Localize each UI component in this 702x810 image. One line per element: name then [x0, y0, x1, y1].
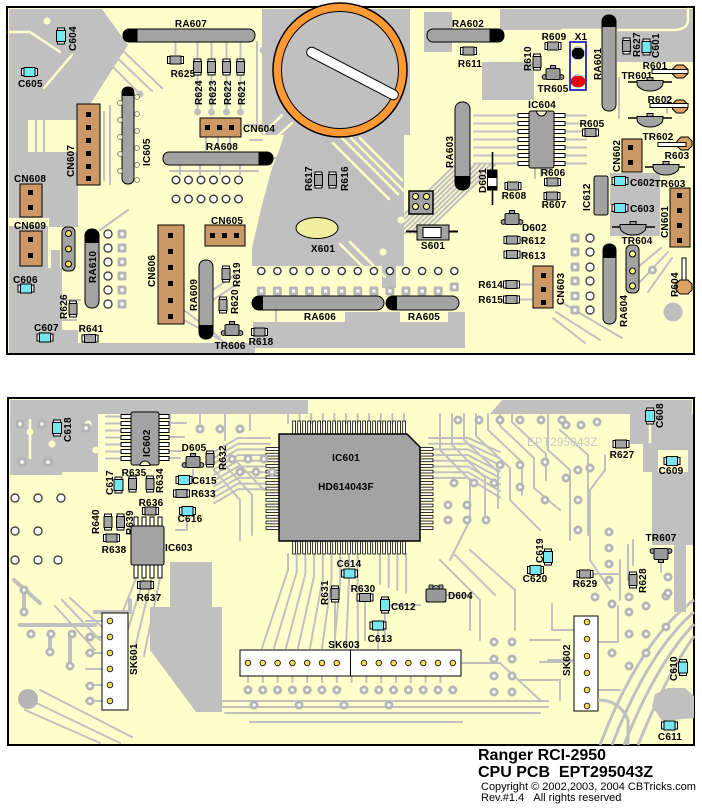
svg-text:HD614043F: HD614043F	[318, 482, 374, 493]
svg-text:CN604: CN604	[243, 124, 275, 135]
svg-text:R616: R616	[340, 166, 351, 191]
svg-text:R625: R625	[171, 69, 196, 80]
svg-text:TR606: TR606	[214, 341, 245, 352]
svg-text:IC602: IC602	[142, 429, 153, 457]
svg-text:C614: C614	[337, 559, 362, 570]
svg-text:R609: R609	[542, 32, 567, 43]
svg-text:CPU PCB EPT295043Z: CPU PCB EPT295043Z	[478, 764, 653, 781]
svg-text:C603: C603	[630, 204, 655, 215]
svg-text:TR604: TR604	[621, 236, 652, 247]
svg-text:C611: C611	[658, 732, 682, 743]
svg-text:D605: D605	[182, 443, 207, 454]
svg-text:R627: R627	[610, 450, 635, 461]
svg-text:RA606: RA606	[304, 312, 336, 323]
svg-text:R622: R622	[223, 80, 234, 105]
svg-text:X601: X601	[311, 244, 335, 255]
svg-text:R617: R617	[304, 166, 315, 191]
svg-text:C605: C605	[18, 79, 43, 90]
svg-text:CN607: CN607	[66, 145, 77, 177]
svg-text:R614: R614	[478, 280, 503, 291]
svg-text:C613: C613	[368, 634, 393, 645]
svg-text:R627: R627	[632, 32, 643, 57]
svg-text:R631: R631	[320, 580, 331, 605]
svg-text:R618: R618	[249, 337, 274, 348]
svg-text:RA605: RA605	[408, 312, 440, 323]
svg-text:Ranger RCI-2950: Ranger RCI-2950	[478, 747, 606, 764]
svg-text:C612: C612	[391, 602, 416, 613]
svg-text:Rev.#1.4 All rights reserved: Rev.#1.4 All rights reserved	[481, 792, 621, 804]
svg-text:R628: R628	[638, 568, 649, 593]
svg-text:CN602: CN602	[612, 140, 623, 172]
svg-text:SK603: SK603	[328, 640, 360, 651]
svg-text:IC612: IC612	[582, 183, 593, 211]
svg-text:R604: R604	[670, 272, 681, 297]
svg-text:RA608: RA608	[206, 142, 238, 153]
svg-text:CN601: CN601	[660, 206, 671, 238]
svg-text:R629: R629	[573, 579, 598, 590]
svg-text:IC601: IC601	[332, 453, 360, 464]
svg-text:C616: C616	[178, 514, 203, 525]
svg-text:CN606: CN606	[147, 255, 158, 287]
svg-text:CN609: CN609	[14, 221, 46, 232]
svg-text:D604: D604	[448, 591, 473, 602]
svg-text:RA609: RA609	[189, 279, 200, 311]
svg-text:R603: R603	[665, 151, 690, 162]
svg-text:C607: C607	[34, 323, 59, 334]
svg-text:IC605: IC605	[142, 138, 153, 166]
svg-text:S601: S601	[421, 241, 445, 252]
svg-text:C608: C608	[655, 403, 666, 428]
svg-text:SK602: SK602	[562, 644, 573, 676]
svg-text:RA601: RA601	[593, 48, 604, 80]
svg-text:R626: R626	[59, 294, 70, 319]
svg-text:R621: R621	[237, 80, 248, 105]
svg-text:R606: R606	[541, 168, 566, 179]
svg-text:D602: D602	[522, 223, 547, 234]
svg-text:CN603: CN603	[556, 273, 567, 305]
svg-text:R615: R615	[478, 295, 503, 306]
svg-text:C618: C618	[63, 417, 74, 442]
svg-text:R632: R632	[218, 445, 229, 470]
svg-text:IC603: IC603	[165, 543, 193, 554]
svg-text:TR602: TR602	[642, 132, 673, 143]
svg-text:RA604: RA604	[619, 295, 630, 327]
svg-text:RA603: RA603	[445, 136, 456, 168]
svg-text:R634: R634	[155, 468, 166, 493]
svg-text:C620: C620	[523, 574, 548, 585]
svg-text:TR605: TR605	[537, 84, 568, 95]
svg-text:R623: R623	[208, 80, 219, 105]
svg-text:SK601: SK601	[129, 643, 140, 675]
svg-text:R611: R611	[458, 59, 482, 70]
svg-text:EPT295043Z: EPT295043Z	[527, 437, 598, 449]
svg-text:R624: R624	[194, 80, 205, 105]
svg-text:C617: C617	[105, 470, 116, 495]
svg-text:IC604: IC604	[528, 100, 556, 111]
svg-text:C604: C604	[68, 26, 79, 51]
svg-text:RA610: RA610	[88, 251, 99, 283]
svg-text:TR607: TR607	[645, 533, 676, 544]
svg-text:C619: C619	[535, 538, 546, 563]
svg-text:C615: C615	[192, 476, 217, 487]
svg-text:R610: R610	[523, 46, 534, 71]
svg-text:R607: R607	[542, 200, 567, 211]
svg-text:C610: C610	[669, 656, 680, 681]
svg-text:R638: R638	[102, 545, 127, 556]
svg-text:R640: R640	[91, 509, 102, 534]
svg-text:R613: R613	[521, 251, 546, 262]
svg-text:RA602: RA602	[452, 19, 484, 30]
svg-text:R641: R641	[79, 324, 104, 335]
svg-text:C601: C601	[651, 33, 662, 58]
svg-text:C609: C609	[659, 466, 684, 477]
svg-text:D601: D601	[478, 168, 489, 193]
svg-text:R620: R620	[230, 289, 241, 314]
svg-text:R633: R633	[191, 489, 216, 500]
svg-text:X1: X1	[575, 32, 588, 43]
svg-text:R612: R612	[521, 236, 546, 247]
svg-text:RA607: RA607	[175, 19, 207, 30]
svg-text:R637: R637	[137, 593, 162, 604]
svg-text:R619: R619	[232, 262, 243, 287]
svg-text:C602: C602	[630, 178, 655, 189]
svg-text:R608: R608	[502, 191, 527, 202]
svg-text:CN608: CN608	[14, 174, 46, 185]
